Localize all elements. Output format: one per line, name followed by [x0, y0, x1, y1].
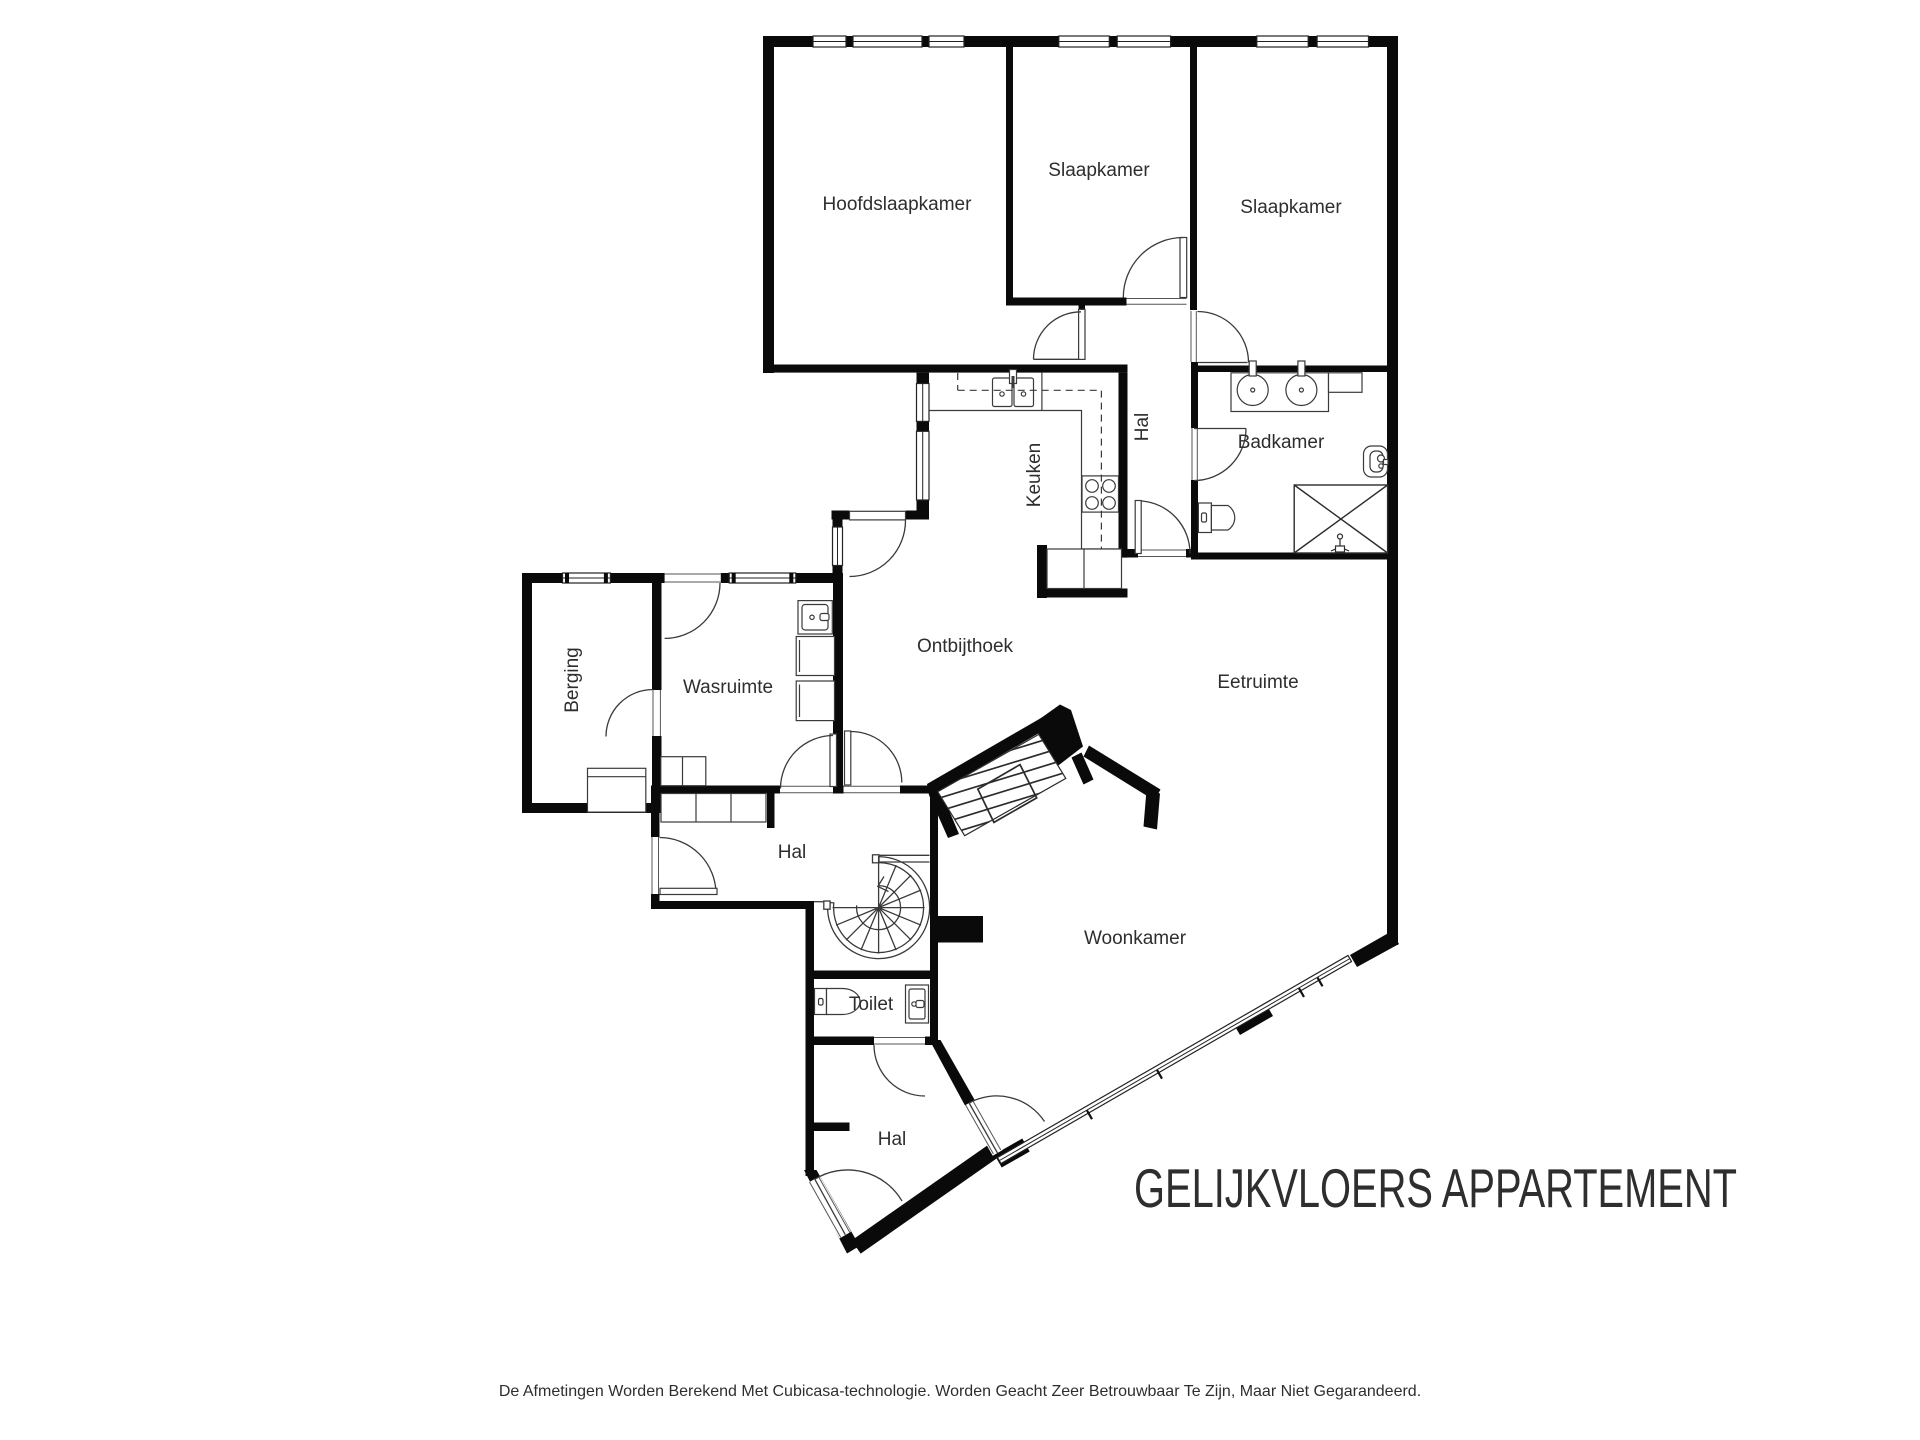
svg-text:Eetruimte: Eetruimte — [1217, 672, 1298, 693]
svg-text:Keuken: Keuken — [1024, 443, 1045, 507]
svg-text:Slaapkamer: Slaapkamer — [1048, 160, 1150, 181]
svg-text:Toilet: Toilet — [849, 994, 894, 1015]
svg-text:Woonkamer: Woonkamer — [1084, 928, 1187, 949]
svg-text:Hal: Hal — [1132, 413, 1153, 442]
svg-text:GELIJKVLOERS APPARTEMENT: GELIJKVLOERS APPARTEMENT — [1134, 1157, 1737, 1219]
svg-text:Wasruimte: Wasruimte — [683, 677, 773, 698]
svg-text:Hoofdslaapkamer: Hoofdslaapkamer — [823, 194, 973, 215]
svg-text:Slaapkamer: Slaapkamer — [1240, 197, 1342, 218]
svg-text:Hal: Hal — [778, 842, 807, 863]
svg-text:De Afmetingen Worden Berekend: De Afmetingen Worden Berekend Met Cubica… — [499, 1383, 1421, 1400]
svg-text:Hal: Hal — [878, 1129, 907, 1150]
svg-text:Berging: Berging — [562, 647, 583, 713]
svg-text:Ontbijthoek: Ontbijthoek — [917, 636, 1014, 657]
svg-text:Badkamer: Badkamer — [1238, 432, 1325, 453]
